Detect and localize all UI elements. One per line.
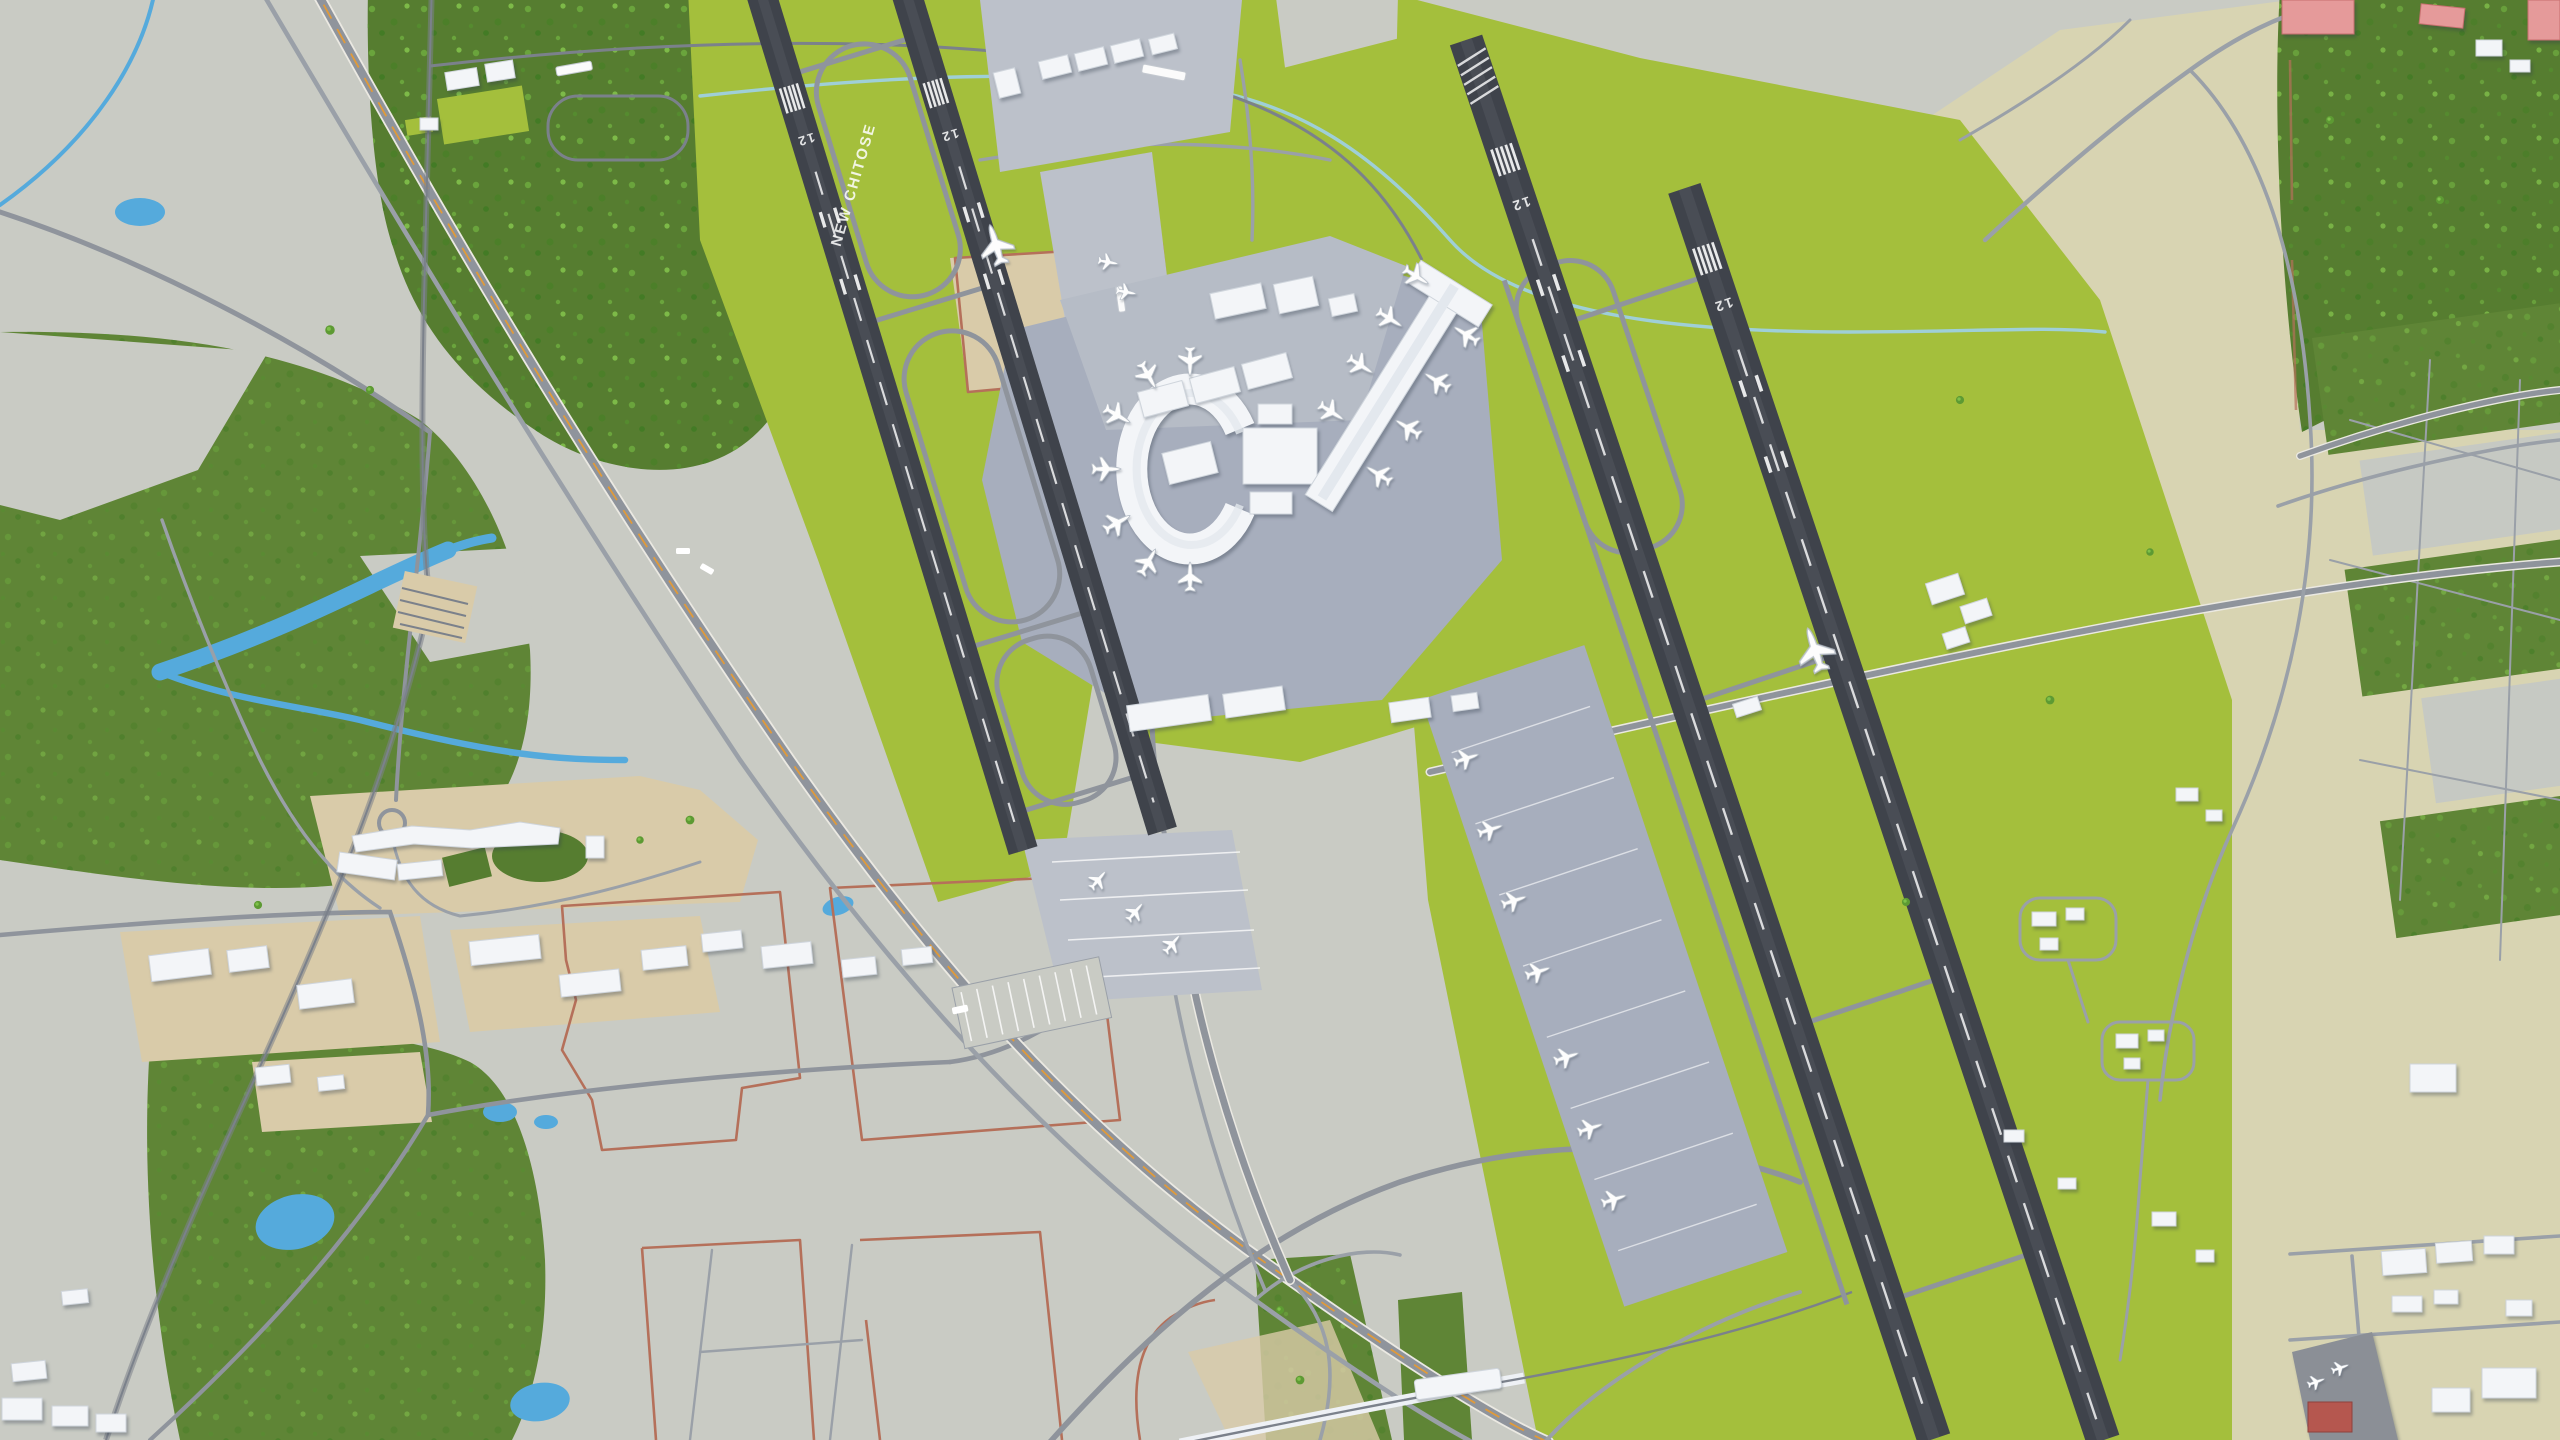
truck <box>676 548 690 554</box>
airport-3d-map: 12 12 12 <box>0 0 2560 1440</box>
isolated-warehouse <box>2410 1064 2456 1092</box>
pond <box>534 1115 558 1129</box>
pink-building <box>2419 4 2465 28</box>
pond <box>115 198 165 226</box>
red-brick-building <box>2308 1402 2352 1432</box>
pink-building <box>2528 0 2560 40</box>
map-viewport[interactable]: 12 12 12 <box>0 0 2560 1440</box>
pink-building <box>2282 0 2354 34</box>
